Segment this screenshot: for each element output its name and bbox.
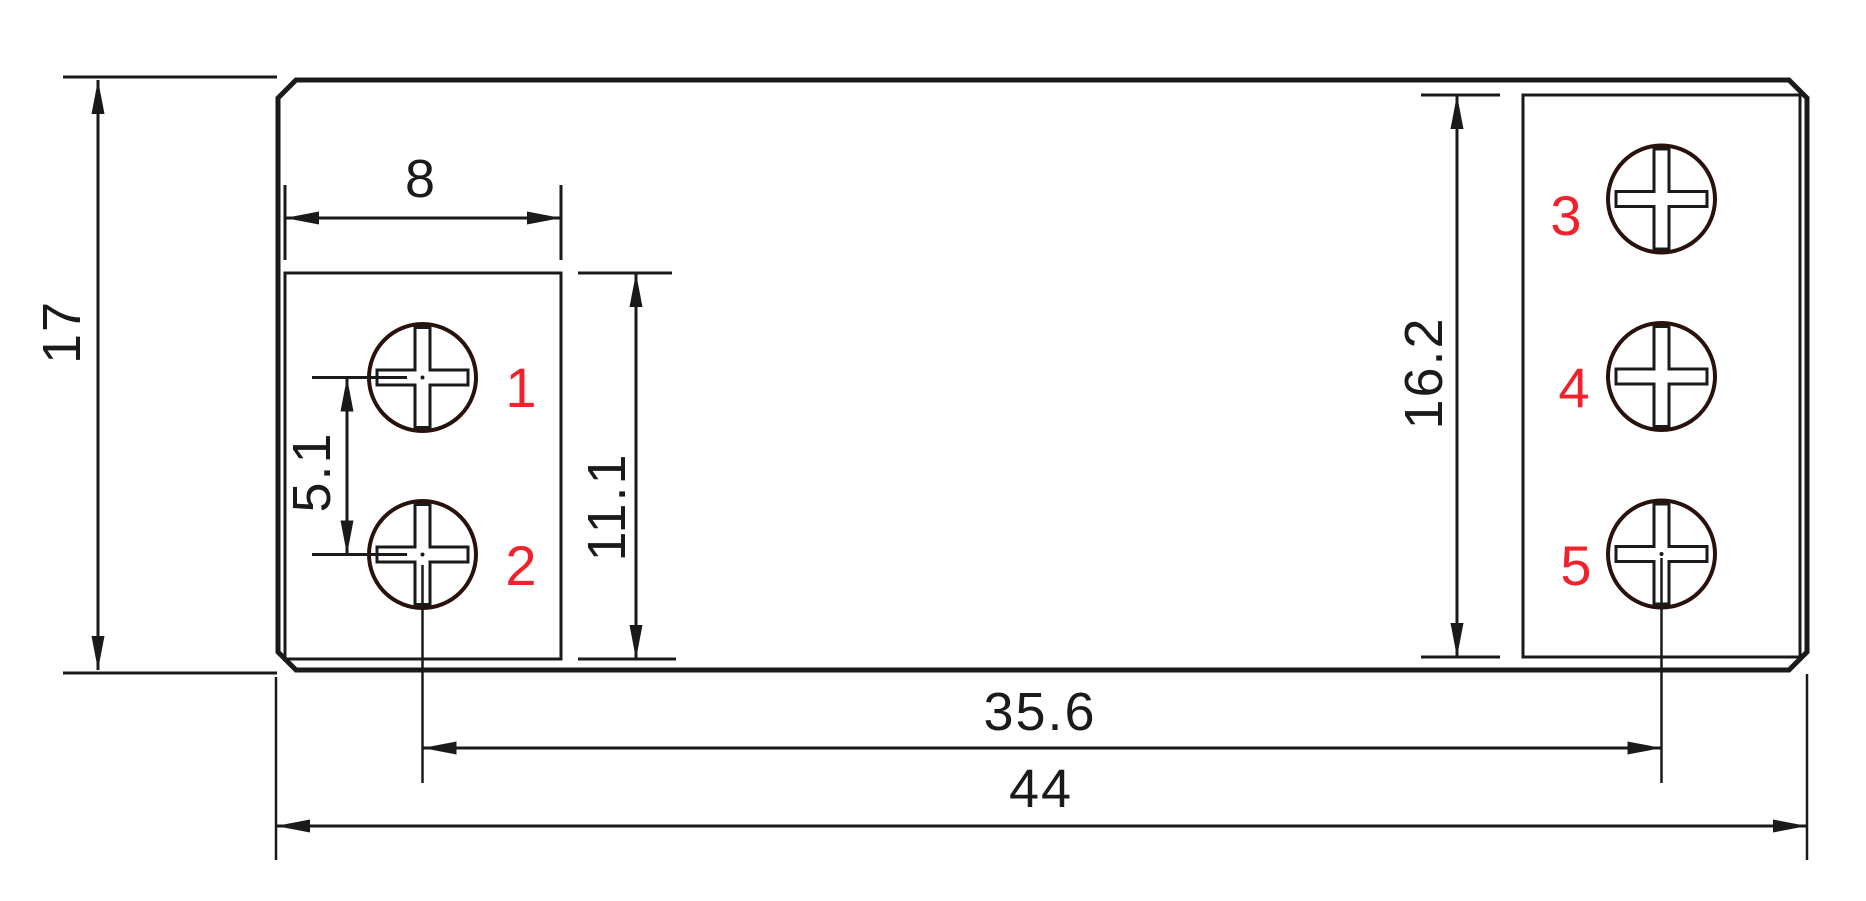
dim-pad-width: 8 xyxy=(285,149,561,260)
dim-pad-width-label: 8 xyxy=(405,149,437,209)
screw-center-mark xyxy=(421,376,425,380)
drawing-canvas: 1 2 3 4 5 17 8 5.1 xyxy=(0,0,1866,901)
screw-center-mark xyxy=(421,553,425,557)
dim-hole-pitch-label: 5.1 xyxy=(282,431,342,512)
dim-left-pad-height: 11.1 xyxy=(577,273,676,659)
screw-terminal-3 xyxy=(1608,146,1715,253)
terminal-label-3: 3 xyxy=(1550,184,1581,247)
terminal-label-5: 5 xyxy=(1560,534,1591,597)
dim-right-pad-height: 16.2 xyxy=(1394,95,1500,657)
screw-center-mark xyxy=(1660,552,1664,556)
dim-overall-height-label: 17 xyxy=(32,300,92,364)
screw-terminal-4 xyxy=(1608,323,1715,430)
terminal-footprint-drawing: 1 2 3 4 5 17 8 5.1 xyxy=(0,0,1866,901)
terminal-label-2: 2 xyxy=(505,534,536,597)
dim-overall-width-label: 44 xyxy=(1009,759,1073,819)
dim-hole-span-label: 35.6 xyxy=(983,682,1096,742)
terminal-label-1: 1 xyxy=(505,356,536,419)
dim-right-pad-height-label: 16.2 xyxy=(1394,316,1454,429)
dim-overall-height: 17 xyxy=(32,77,277,673)
dim-left-pad-height-label: 11.1 xyxy=(577,452,637,561)
terminal-label-4: 4 xyxy=(1558,356,1589,419)
